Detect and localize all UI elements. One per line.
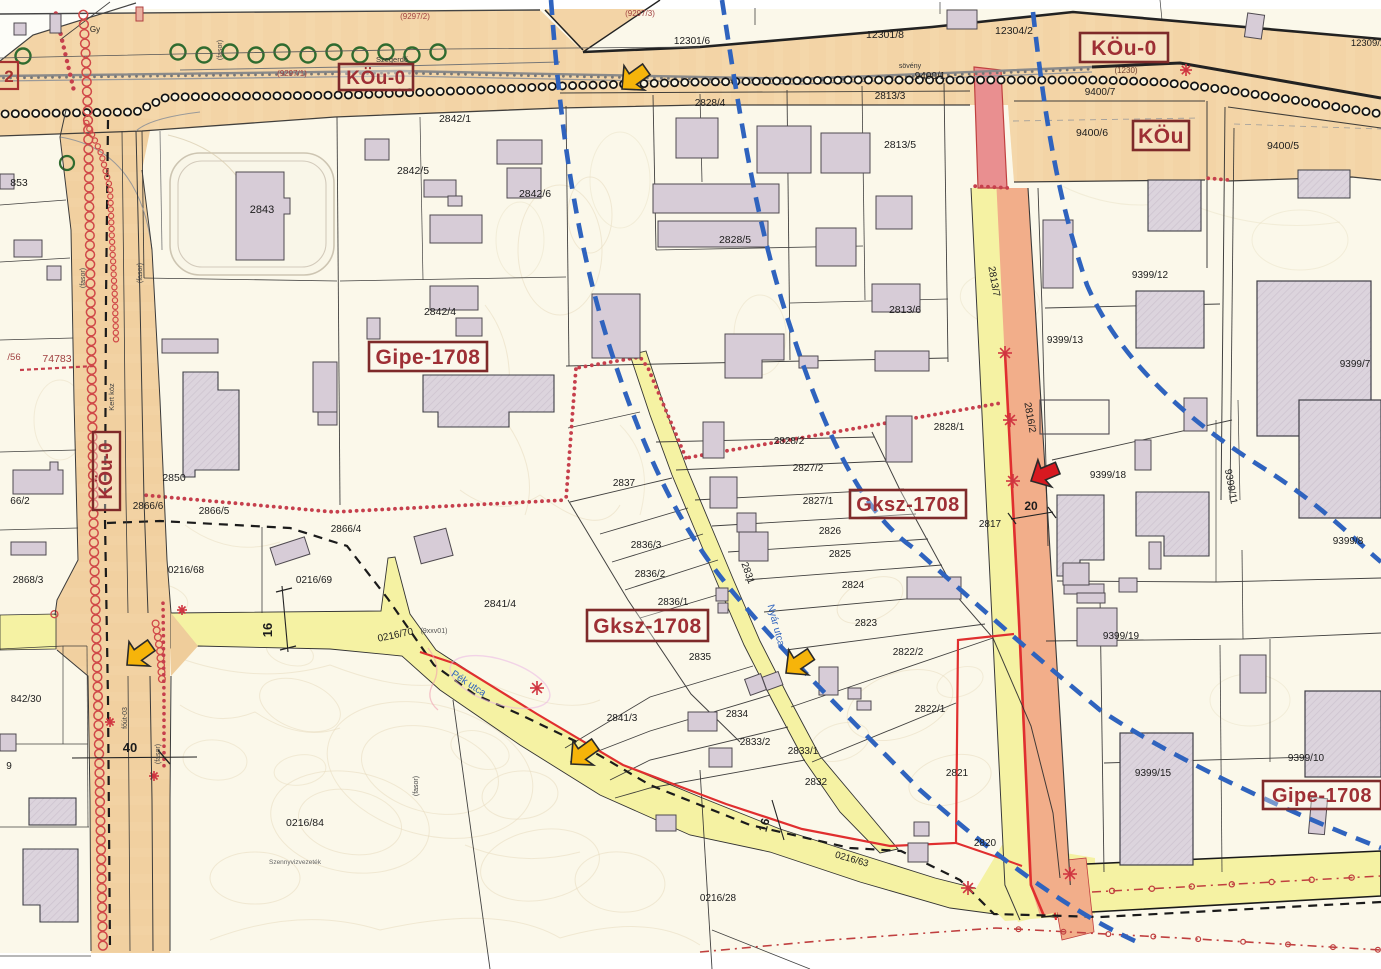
svg-text:KÖu-0: KÖu-0 <box>346 68 406 89</box>
svg-text:KÖu-0: KÖu-0 <box>1091 37 1157 60</box>
svg-text:0216/69: 0216/69 <box>296 575 333 586</box>
svg-text:2813/6: 2813/6 <box>889 304 921 316</box>
svg-text:16: 16 <box>260 623 275 637</box>
svg-text:9400/6: 9400/6 <box>1076 127 1108 139</box>
svg-text:Gipe-1708: Gipe-1708 <box>1272 785 1372 807</box>
svg-text:(9xxv01): (9xxv01) <box>421 628 448 635</box>
svg-text:(9297/2): (9297/2) <box>400 12 430 21</box>
svg-text:2836/1: 2836/1 <box>658 597 689 608</box>
svg-text:40: 40 <box>123 740 137 755</box>
svg-text:Szegerdő: Szegerdő <box>376 55 408 64</box>
svg-text:2820: 2820 <box>974 838 997 849</box>
svg-text:2842/1: 2842/1 <box>439 113 471 125</box>
svg-text:2841/4: 2841/4 <box>484 598 516 610</box>
svg-text:2834: 2834 <box>726 709 749 720</box>
svg-text:2842/4: 2842/4 <box>424 306 456 318</box>
svg-text:9399/18: 9399/18 <box>1090 470 1127 481</box>
svg-text:2835: 2835 <box>689 652 712 663</box>
svg-text:2828/5: 2828/5 <box>719 234 751 246</box>
svg-text:2850: 2850 <box>162 472 186 484</box>
svg-text:66/2: 66/2 <box>10 496 30 507</box>
svg-text:2833/1: 2833/1 <box>788 746 819 757</box>
svg-text:2837: 2837 <box>613 478 636 489</box>
svg-text:(9297/3): (9297/3) <box>625 9 655 18</box>
svg-text:0216/84: 0216/84 <box>286 817 324 829</box>
svg-text:2: 2 <box>4 67 13 86</box>
svg-text:KÖu: KÖu <box>1138 125 1184 148</box>
svg-text:2841/3: 2841/3 <box>607 713 638 724</box>
svg-text:9400/1: 9400/1 <box>915 71 946 82</box>
svg-text:Gksz-1708: Gksz-1708 <box>856 494 959 516</box>
svg-text:Gksz-1708: Gksz-1708 <box>593 615 701 638</box>
svg-text:KÖu-0: KÖu-0 <box>96 443 117 500</box>
svg-text:12309/2: 12309/2 <box>1351 38 1381 49</box>
svg-text:2817: 2817 <box>979 519 1002 530</box>
svg-text:(fasor): (fasor) <box>155 744 162 764</box>
svg-text:sövény: sövény <box>899 63 922 70</box>
svg-text:2822/1: 2822/1 <box>915 704 946 715</box>
svg-text:0216/28: 0216/28 <box>700 893 737 904</box>
svg-text:9399/15: 9399/15 <box>1135 768 1172 779</box>
svg-text:9400/7: 9400/7 <box>1085 87 1116 98</box>
svg-text:2827/1: 2827/1 <box>803 496 834 507</box>
svg-text:2822/2: 2822/2 <box>893 647 924 658</box>
svg-text:2825: 2825 <box>829 549 852 560</box>
svg-text:2828/4: 2828/4 <box>695 98 726 109</box>
svg-text:20: 20 <box>1024 499 1038 513</box>
svg-text:(fasor): (fasor) <box>217 40 224 60</box>
svg-text:Szennyvizvezeték: Szennyvizvezeték <box>269 859 322 866</box>
svg-text:2836/2: 2836/2 <box>635 569 666 580</box>
svg-text:2868/3: 2868/3 <box>13 575 44 586</box>
svg-text:Gy: Gy <box>90 25 100 34</box>
svg-text:2842/5: 2842/5 <box>397 165 429 177</box>
svg-text:2866/5: 2866/5 <box>199 506 230 517</box>
svg-text:Gipe-1708: Gipe-1708 <box>376 346 481 369</box>
svg-text:9399/12: 9399/12 <box>1132 270 1169 281</box>
svg-text:0216/68: 0216/68 <box>168 565 205 576</box>
svg-text:9: 9 <box>6 761 12 772</box>
svg-text:9400/5: 9400/5 <box>1267 140 1299 152</box>
svg-text:2828/1: 2828/1 <box>934 422 965 433</box>
svg-text:2823: 2823 <box>855 618 878 629</box>
svg-text:842/30: 842/30 <box>11 694 42 705</box>
svg-text:főút-03: főút-03 <box>122 707 129 729</box>
svg-text:2826: 2826 <box>819 526 842 537</box>
svg-text:9399/8: 9399/8 <box>1333 536 1364 547</box>
svg-text:12304/2: 12304/2 <box>995 25 1033 37</box>
svg-text:74783: 74783 <box>42 353 71 365</box>
svg-text:2843: 2843 <box>250 204 274 216</box>
svg-text:(9297/1): (9297/1) <box>277 69 307 78</box>
svg-text:2813/3: 2813/3 <box>875 91 906 102</box>
svg-text:(fasor): (fasor) <box>80 268 87 288</box>
svg-text:(fasor): (fasor) <box>413 776 420 796</box>
svg-text:2828/2: 2828/2 <box>774 436 805 447</box>
svg-text:12301/8: 12301/8 <box>866 29 904 41</box>
svg-text:2866/4: 2866/4 <box>331 524 362 535</box>
svg-text:9399/10: 9399/10 <box>1288 753 1325 764</box>
svg-text:2833/2: 2833/2 <box>740 737 771 748</box>
svg-text:2813/5: 2813/5 <box>884 139 916 151</box>
svg-text:2842/6: 2842/6 <box>519 188 551 200</box>
svg-text:2824: 2824 <box>842 580 865 591</box>
svg-text:2866/6: 2866/6 <box>133 501 164 512</box>
svg-text:9399/13: 9399/13 <box>1047 335 1084 346</box>
svg-text:9399/19: 9399/19 <box>1103 631 1140 642</box>
svg-text:(fasor): (fasor) <box>137 263 144 283</box>
svg-text:12301/6: 12301/6 <box>674 36 711 47</box>
svg-text:/56: /56 <box>7 352 20 363</box>
svg-text:853: 853 <box>10 177 28 189</box>
svg-text:2836/3: 2836/3 <box>631 540 662 551</box>
svg-text:2832: 2832 <box>805 777 828 788</box>
svg-text:Kert köz: Kert köz <box>107 383 116 411</box>
svg-text:(1230): (1230) <box>1114 66 1137 75</box>
svg-text:2821: 2821 <box>946 768 969 779</box>
svg-text:2827/2: 2827/2 <box>793 463 824 474</box>
svg-text:9399/7: 9399/7 <box>1340 359 1371 370</box>
